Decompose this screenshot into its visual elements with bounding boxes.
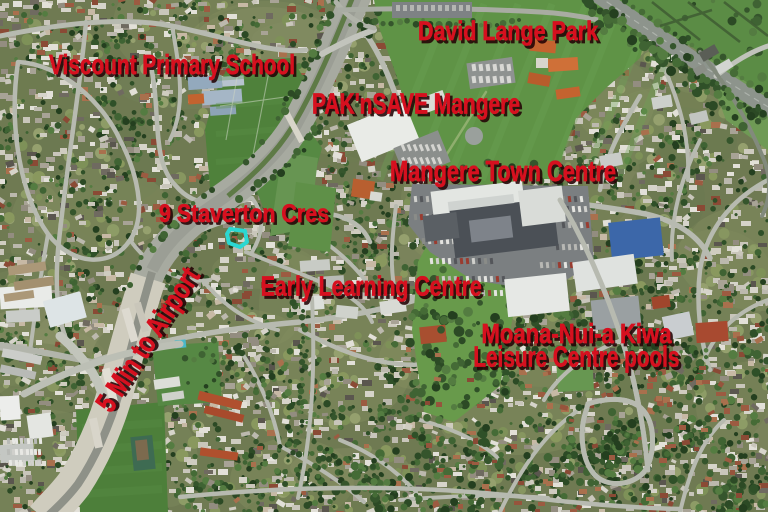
svg-text:Leisure Centre pools: Leisure Centre pools	[473, 342, 679, 374]
svg-text:Viscount Primary School: Viscount Primary School	[49, 49, 295, 80]
svg-text:Mangere Town Centre: Mangere Town Centre	[390, 155, 616, 187]
svg-text:Early Learning Centre: Early Learning Centre	[261, 271, 482, 302]
svg-text:9 Staverton Cres: 9 Staverton Cres	[159, 200, 329, 228]
svg-text:PAK'nSAVE Mangere: PAK'nSAVE Mangere	[312, 88, 520, 120]
svg-text:David Lange Park: David Lange Park	[418, 16, 599, 46]
